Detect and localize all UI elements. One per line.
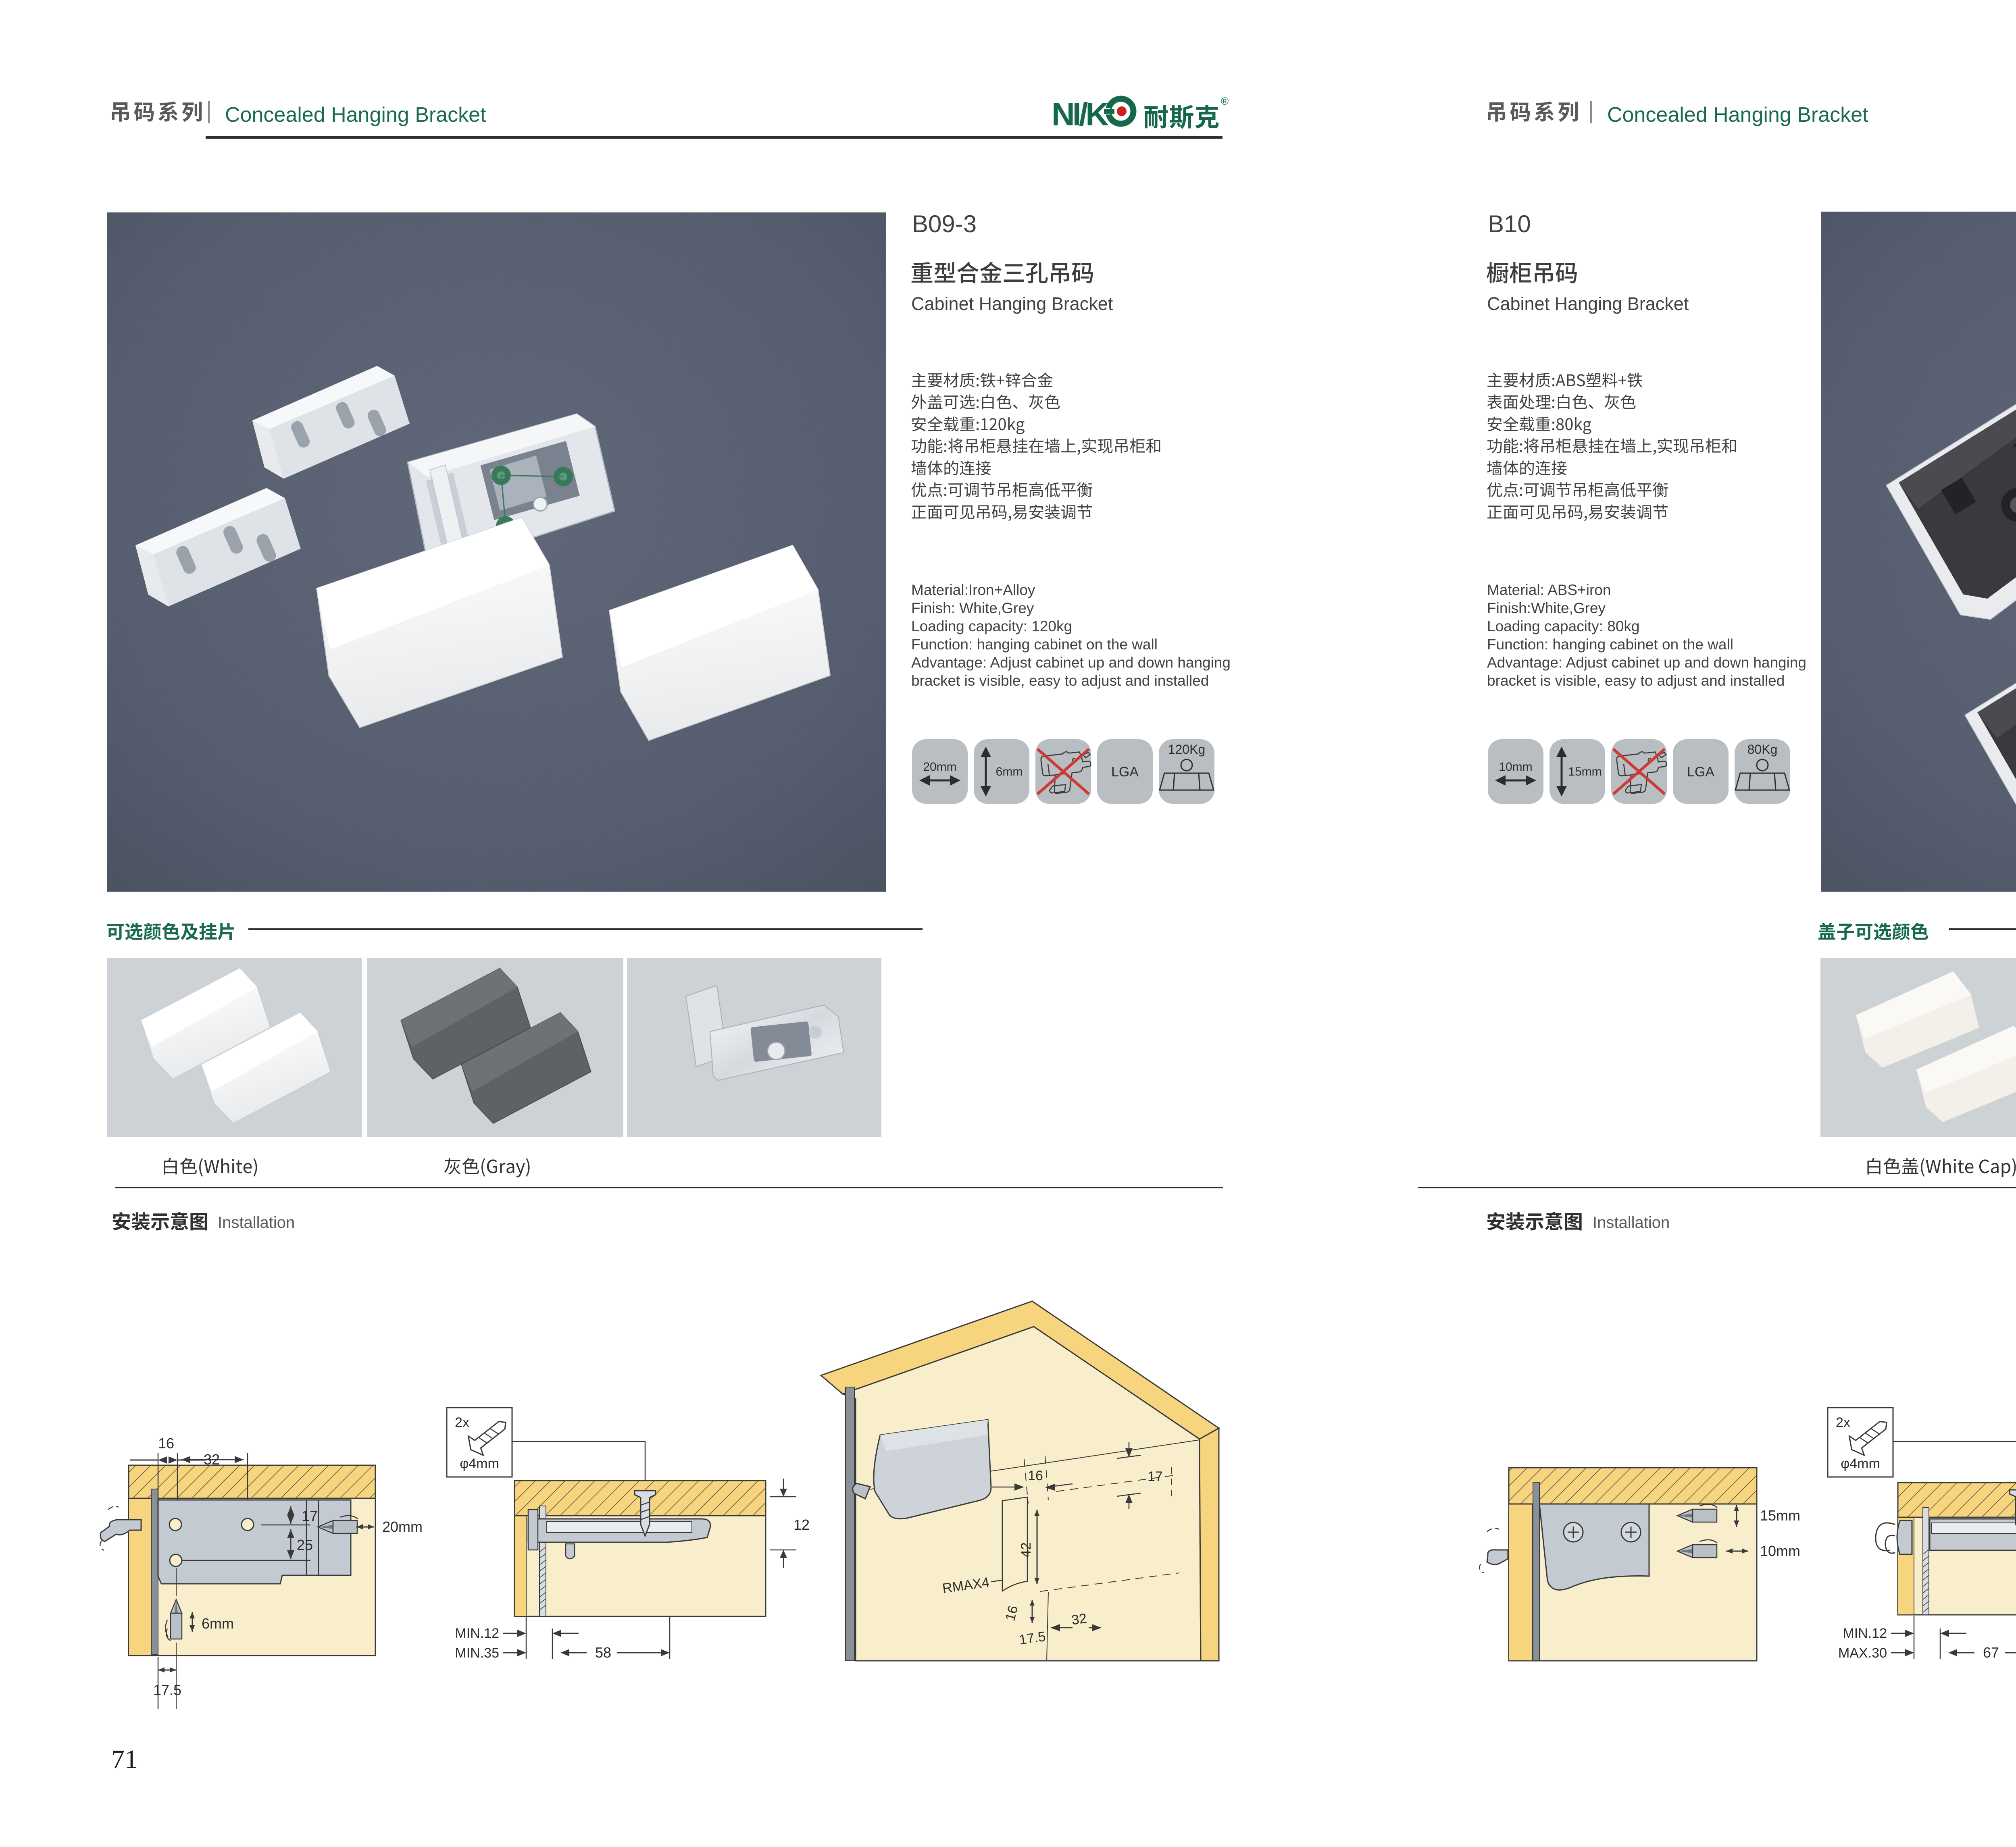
svg-text:Loading capacity: 80kg: Loading capacity: 80kg xyxy=(1487,618,1640,634)
svg-text:6mm: 6mm xyxy=(202,1615,234,1632)
svg-text:25: 25 xyxy=(297,1537,313,1553)
svg-text:32: 32 xyxy=(204,1451,220,1468)
svg-text:®: ® xyxy=(1221,95,1229,107)
svg-text:Concealed Hanging Bracket: Concealed Hanging Bracket xyxy=(225,103,486,127)
svg-text:20mm: 20mm xyxy=(923,760,956,774)
svg-text:16: 16 xyxy=(1028,1468,1043,1483)
svg-text:10mm: 10mm xyxy=(1760,1543,1800,1559)
svg-text:15mm: 15mm xyxy=(1760,1507,1800,1524)
svg-text:B09-3: B09-3 xyxy=(912,210,977,237)
svg-text:2x: 2x xyxy=(455,1415,469,1430)
svg-text:67: 67 xyxy=(1983,1644,1999,1661)
svg-text:Advantage: Adjust cabinet up a: Advantage: Adjust cabinet up and down ha… xyxy=(1487,654,1806,671)
svg-text:42: 42 xyxy=(1018,1542,1034,1558)
svg-text:Cabinet Hanging Bracket: Cabinet Hanging Bracket xyxy=(911,293,1113,314)
svg-text:Loading capacity: 120kg: Loading capacity: 120kg xyxy=(911,618,1072,634)
svg-text:6mm: 6mm xyxy=(996,765,1023,778)
svg-text:2x: 2x xyxy=(1836,1415,1850,1430)
svg-text:bracket is visible, easy to ad: bracket is visible, easy to adjust and i… xyxy=(911,672,1209,689)
svg-text:MIN.12: MIN.12 xyxy=(1843,1626,1887,1641)
svg-text:LGA: LGA xyxy=(1687,764,1714,780)
svg-text:120Kg: 120Kg xyxy=(1168,742,1206,757)
svg-text:Concealed Hanging Bracket: Concealed Hanging Bracket xyxy=(1607,103,1868,127)
svg-text:MAX.30: MAX.30 xyxy=(1838,1645,1887,1661)
svg-text:bracket is visible, easy to ad: bracket is visible, easy to adjust and i… xyxy=(1487,672,1785,689)
svg-text:Advantage: Adjust cabinet up a: Advantage: Adjust cabinet up and down ha… xyxy=(911,654,1231,671)
svg-text:80Kg: 80Kg xyxy=(1747,742,1778,757)
svg-text:32: 32 xyxy=(1070,1611,1088,1628)
svg-text:NI/K: NI/K xyxy=(1052,96,1109,132)
svg-text:17: 17 xyxy=(302,1508,318,1524)
svg-text:Installation: Installation xyxy=(1593,1214,1670,1231)
svg-text:71: 71 xyxy=(111,1745,138,1774)
svg-text:LGA: LGA xyxy=(1111,764,1139,780)
svg-text:Installation: Installation xyxy=(218,1214,295,1231)
svg-text:58: 58 xyxy=(595,1644,611,1661)
svg-text:φ4mm: φ4mm xyxy=(1841,1456,1880,1471)
svg-text:Material:Iron+Alloy: Material:Iron+Alloy xyxy=(911,582,1035,598)
svg-text:Function: hanging cabinet on t: Function: hanging cabinet on the wall xyxy=(911,636,1158,653)
svg-text:MIN.12: MIN.12 xyxy=(455,1626,499,1641)
svg-text:Material: ABS+iron: Material: ABS+iron xyxy=(1487,582,1611,598)
svg-text:Finish: White,Grey: Finish: White,Grey xyxy=(911,600,1034,616)
svg-text:Cabinet Hanging Bracket: Cabinet Hanging Bracket xyxy=(1487,293,1689,314)
svg-text:12: 12 xyxy=(793,1516,810,1533)
svg-text:Function: hanging cabinet on t: Function: hanging cabinet on the wall xyxy=(1487,636,1733,653)
svg-text:16: 16 xyxy=(158,1435,174,1452)
svg-text:15mm: 15mm xyxy=(1568,765,1602,778)
svg-text:B10: B10 xyxy=(1488,210,1531,237)
svg-text:Finish:White,Grey: Finish:White,Grey xyxy=(1487,600,1606,616)
svg-text:17.5: 17.5 xyxy=(153,1682,181,1698)
svg-text:10mm: 10mm xyxy=(1499,760,1532,774)
svg-text:17: 17 xyxy=(1148,1469,1163,1484)
svg-text:MIN.35: MIN.35 xyxy=(455,1645,499,1661)
svg-text:φ4mm: φ4mm xyxy=(460,1456,499,1471)
svg-text:20mm: 20mm xyxy=(382,1518,423,1535)
